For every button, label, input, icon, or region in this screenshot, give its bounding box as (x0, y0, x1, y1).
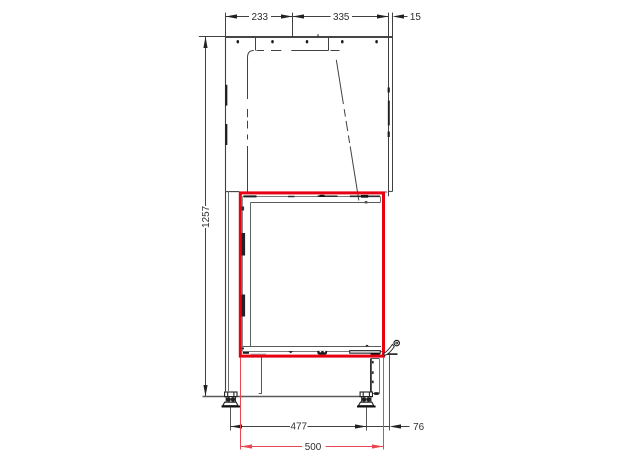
svg-text:1257: 1257 (201, 206, 212, 228)
svg-text:15: 15 (410, 12, 421, 23)
svg-text:477: 477 (291, 421, 307, 432)
svg-text:500: 500 (305, 442, 322, 453)
svg-text:335: 335 (333, 12, 350, 23)
svg-text:76: 76 (413, 422, 424, 433)
svg-text:233: 233 (252, 12, 269, 23)
